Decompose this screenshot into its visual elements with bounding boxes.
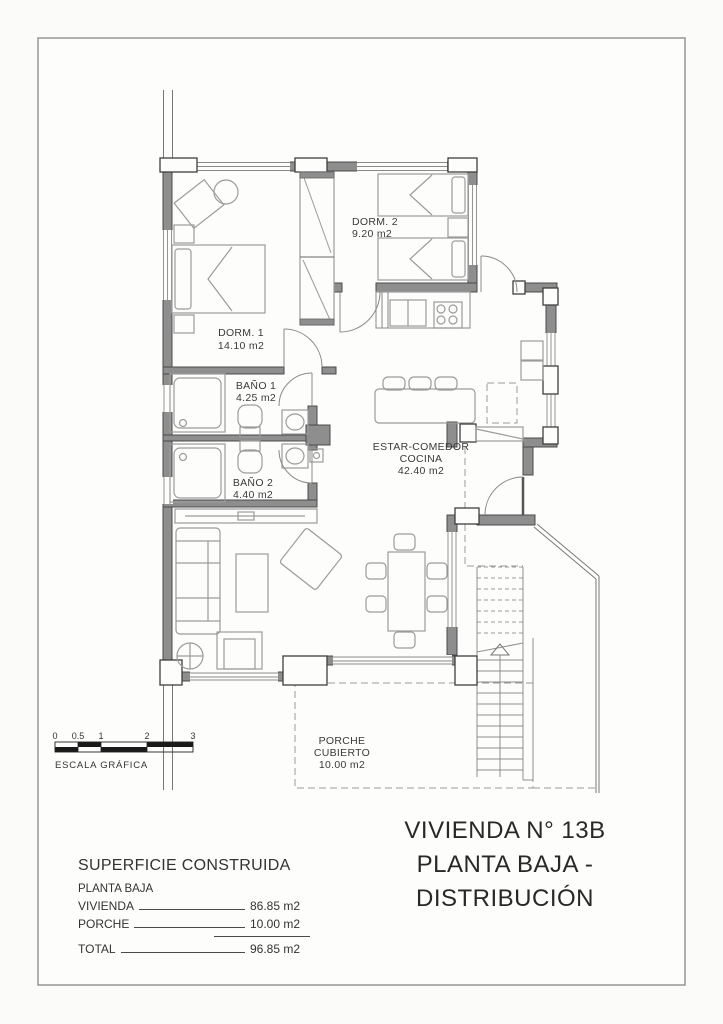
area-table-subheader: PLANTA BAJA <box>78 883 310 895</box>
title-line1: VIVIENDA N° 13B <box>325 814 685 848</box>
room-area-dorm2: 9.20 m2 <box>352 228 392 240</box>
room-area-porch: 10.00 m2 <box>319 759 365 771</box>
room-area-living: 42.40 m2 <box>398 465 444 477</box>
room-label-living-2: COCINA <box>400 453 443 465</box>
scale-caption: ESCALA GRÁFICA <box>55 760 148 771</box>
bed-double <box>172 245 265 313</box>
row-label: TOTAL <box>78 942 116 956</box>
room-label-bath2: BAÑO 2 <box>233 476 273 489</box>
sheet: DORM. 1 14.10 m2 DORM. 2 9.20 m2 BAÑO 1 … <box>0 0 723 1024</box>
row-value: 86.85 m2 <box>250 899 310 913</box>
room-label-bath1: BAÑO 1 <box>236 379 276 392</box>
leader-line <box>139 909 245 910</box>
room-label-porch: PORCHE <box>319 735 366 747</box>
area-table-header: SUPERFICIE CONSTRUIDA <box>78 857 310 875</box>
title-line2: PLANTA BAJA - DISTRIBUCIÓN <box>325 848 685 916</box>
area-table: SUPERFICIE CONSTRUIDA PLANTA BAJA VIVIEN… <box>78 857 310 956</box>
room-area-bath2: 4.40 m2 <box>233 489 273 501</box>
room-label-dorm2: DORM. 2 <box>352 216 398 228</box>
table-row-vivienda: VIVIENDA 86.85 m2 <box>78 899 310 913</box>
room-label-living: ESTAR-COMEDOR <box>373 441 470 453</box>
table-row-porche: PORCHE 10.00 m2 <box>78 917 310 931</box>
drawing-title: VIVIENDA N° 13B PLANTA BAJA - DISTRIBUCI… <box>325 814 685 916</box>
room-label-dorm1: DORM. 1 <box>218 327 264 339</box>
room-area-dorm1: 14.10 m2 <box>218 340 264 352</box>
room-area-bath1: 4.25 m2 <box>236 392 276 404</box>
scale-tick-05: 0.5 <box>72 731 85 741</box>
bed-single <box>378 238 468 280</box>
wardrobe <box>300 172 334 325</box>
leader-line <box>121 952 245 953</box>
row-label: PORCHE <box>78 917 129 931</box>
row-value: 96.85 m2 <box>250 942 310 956</box>
table-row-total: TOTAL 96.85 m2 <box>78 942 310 956</box>
total-separator <box>214 936 310 937</box>
room-label-porch-2: CUBIERTO <box>314 747 370 759</box>
scale-tick-1: 1 <box>98 731 103 741</box>
scale-tick-0: 0 <box>52 731 57 741</box>
row-value: 10.00 m2 <box>250 917 310 931</box>
scale-tick-2: 2 <box>144 731 149 741</box>
scale-tick-3: 3 <box>190 731 195 741</box>
bed-single <box>378 174 468 216</box>
row-label: VIVIENDA <box>78 899 134 913</box>
leader-line <box>134 927 245 928</box>
